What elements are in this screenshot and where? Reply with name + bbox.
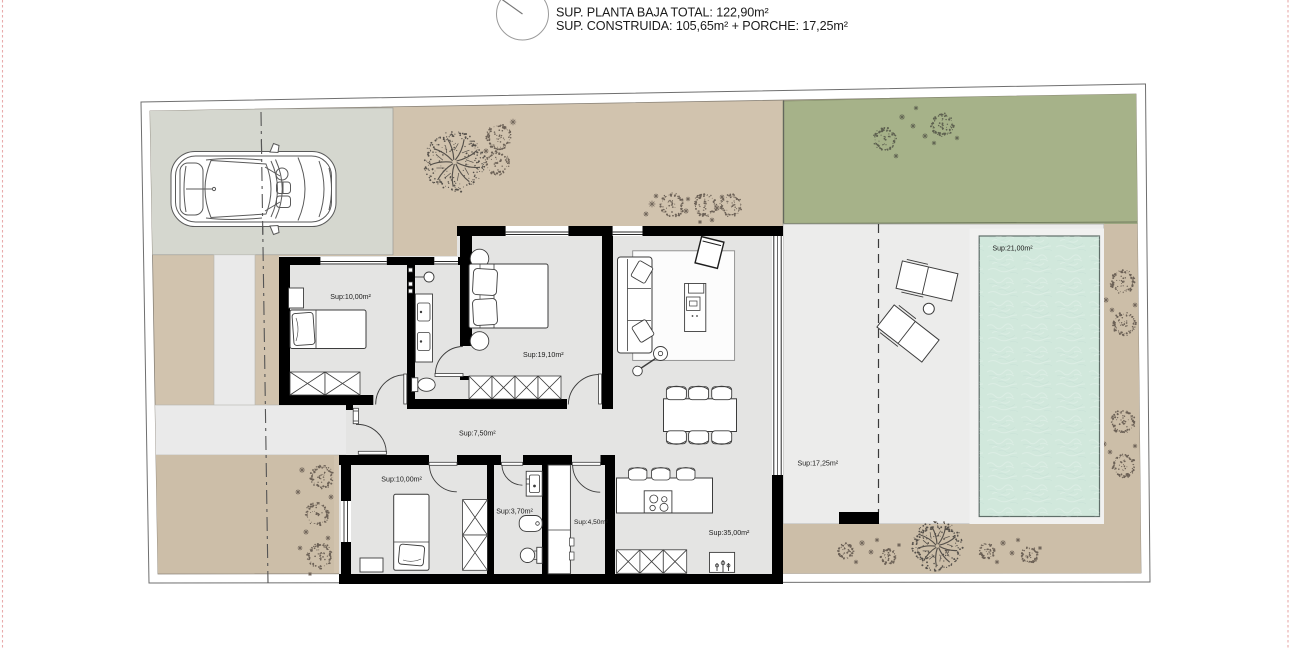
svg-text:Sup:21,00m²: Sup:21,00m² — [993, 246, 1034, 253]
svg-text:Sup:4,50m²: Sup:4,50m² — [574, 519, 609, 526]
svg-text:Sup:19,10m²: Sup:19,10m² — [523, 351, 564, 359]
svg-text:Sup:10,00m²: Sup:10,00m² — [381, 476, 422, 484]
svg-text:Sup:17,25m²: Sup:17,25m² — [798, 459, 839, 467]
svg-text:SUP. PLANTA BAJA TOTAL: 122,90: SUP. PLANTA BAJA TOTAL: 122,90m² — [556, 6, 769, 20]
svg-text:SUP. CONSTRUIDA: 105,65m² + PO: SUP. CONSTRUIDA: 105,65m² + PORCHE: 17,2… — [556, 19, 848, 33]
svg-text:Sup:10,00m²: Sup:10,00m² — [330, 293, 371, 301]
svg-text:Sup:35,00m²: Sup:35,00m² — [709, 529, 750, 537]
svg-text:Sup:3,70m²: Sup:3,70m² — [496, 508, 533, 516]
svg-text:Sup:7,50m²: Sup:7,50m² — [459, 430, 496, 438]
